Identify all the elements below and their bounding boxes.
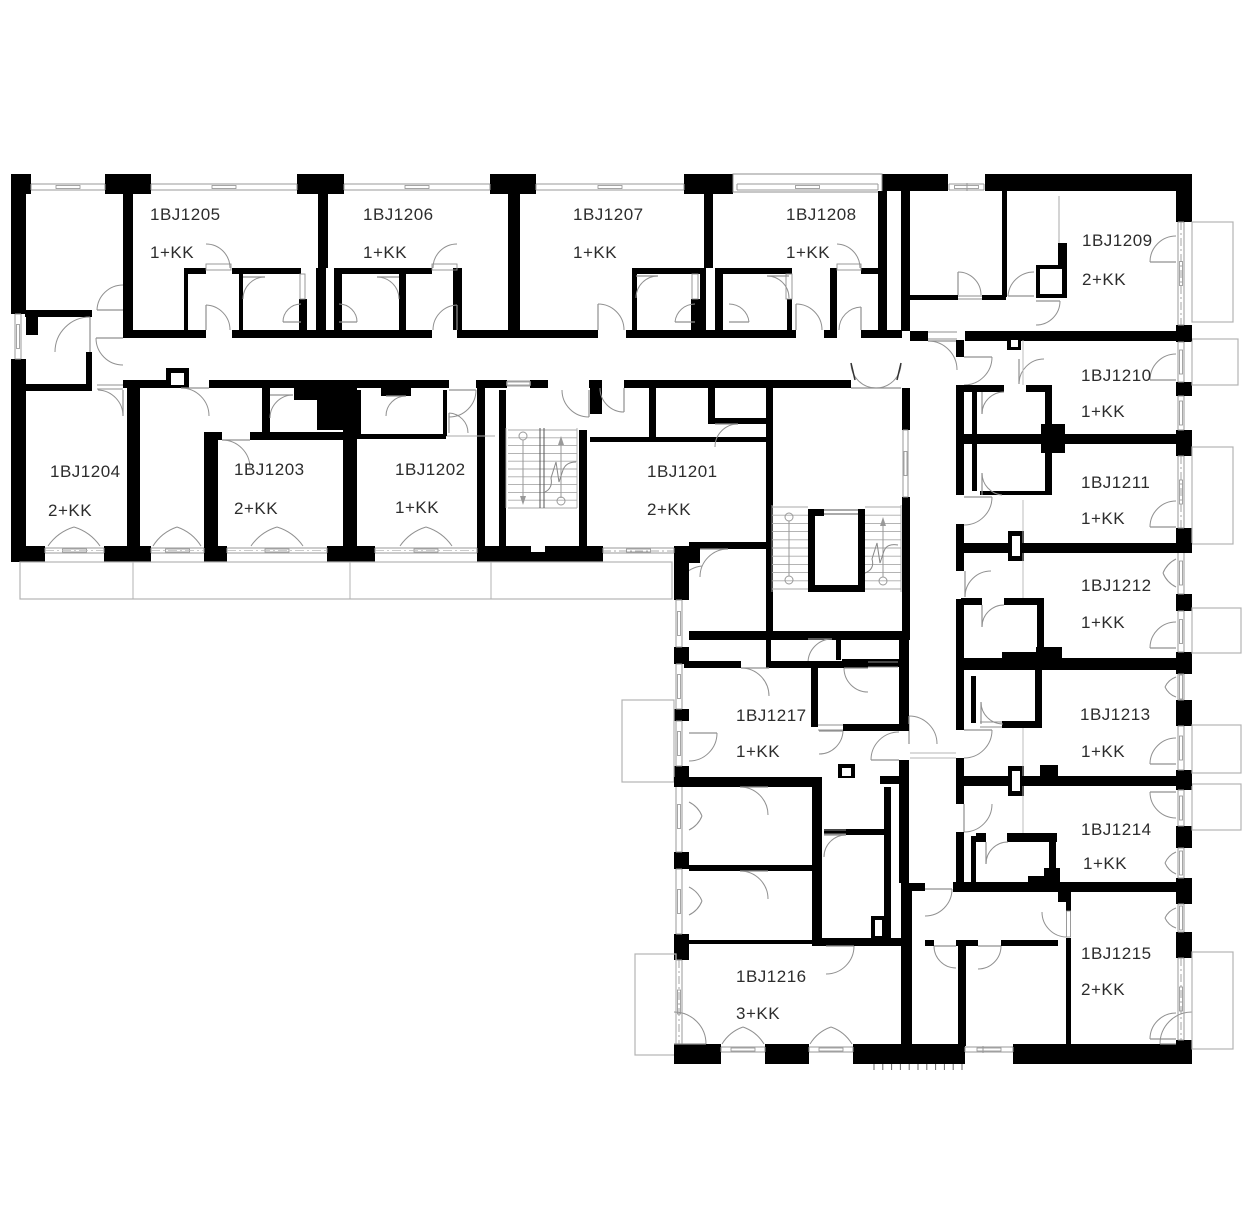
svg-text:1+KK: 1+KK <box>363 243 407 262</box>
svg-text:1BJ1217: 1BJ1217 <box>736 706 807 725</box>
svg-text:1BJ1208: 1BJ1208 <box>786 205 857 224</box>
svg-text:1+KK: 1+KK <box>1083 854 1127 873</box>
svg-text:1+KK: 1+KK <box>395 498 439 517</box>
svg-text:1BJ1215: 1BJ1215 <box>1081 944 1152 963</box>
svg-text:1+KK: 1+KK <box>1081 742 1125 761</box>
svg-text:1+KK: 1+KK <box>1081 509 1125 528</box>
svg-text:1BJ1207: 1BJ1207 <box>573 205 644 224</box>
svg-text:1+KK: 1+KK <box>150 243 194 262</box>
svg-text:2+KK: 2+KK <box>48 501 92 520</box>
svg-text:1BJ1214: 1BJ1214 <box>1081 820 1152 839</box>
svg-text:1BJ1203: 1BJ1203 <box>234 460 305 479</box>
svg-text:1+KK: 1+KK <box>1081 402 1125 421</box>
svg-text:1+KK: 1+KK <box>1081 613 1125 632</box>
svg-text:1+KK: 1+KK <box>736 742 780 761</box>
svg-text:1BJ1202: 1BJ1202 <box>395 460 466 479</box>
svg-text:2+KK: 2+KK <box>234 499 278 518</box>
svg-text:1BJ1206: 1BJ1206 <box>363 205 434 224</box>
svg-text:1BJ1205: 1BJ1205 <box>150 205 221 224</box>
svg-text:2+KK: 2+KK <box>1082 270 1126 289</box>
svg-text:3+KK: 3+KK <box>736 1004 780 1023</box>
svg-text:1BJ1212: 1BJ1212 <box>1081 576 1152 595</box>
svg-text:1+KK: 1+KK <box>786 243 830 262</box>
svg-text:1BJ1216: 1BJ1216 <box>736 967 807 986</box>
svg-text:1BJ1201: 1BJ1201 <box>647 462 718 481</box>
svg-text:1BJ1210: 1BJ1210 <box>1081 366 1152 385</box>
svg-text:2+KK: 2+KK <box>1081 980 1125 999</box>
svg-text:1BJ1211: 1BJ1211 <box>1081 473 1150 492</box>
svg-text:2+KK: 2+KK <box>647 500 691 519</box>
svg-text:1+KK: 1+KK <box>573 243 617 262</box>
svg-text:1BJ1209: 1BJ1209 <box>1082 231 1153 250</box>
svg-text:1BJ1204: 1BJ1204 <box>50 462 121 481</box>
svg-text:1BJ1213: 1BJ1213 <box>1080 705 1151 724</box>
